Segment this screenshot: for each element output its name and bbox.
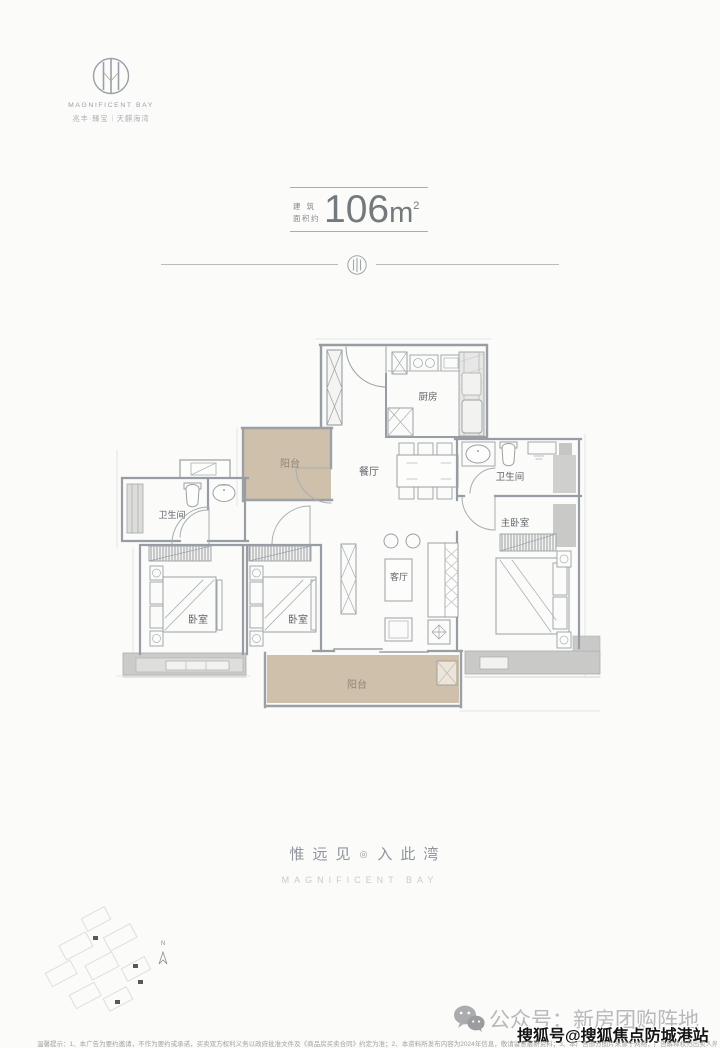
svg-text:卫生间: 卫生间 [158, 509, 185, 520]
svg-text:厨房: 厨房 [418, 391, 437, 403]
svg-text:卧室: 卧室 [188, 613, 208, 626]
svg-text:卧室: 卧室 [288, 613, 308, 626]
svg-text:客厅: 客厅 [390, 571, 408, 582]
svg-text:N: N [161, 941, 165, 947]
svg-text:主卧室: 主卧室 [501, 517, 530, 529]
svg-text:卫生间: 卫生间 [496, 471, 525, 483]
svg-text:阳台: 阳台 [347, 678, 367, 691]
svg-text:餐厅: 餐厅 [359, 465, 379, 478]
